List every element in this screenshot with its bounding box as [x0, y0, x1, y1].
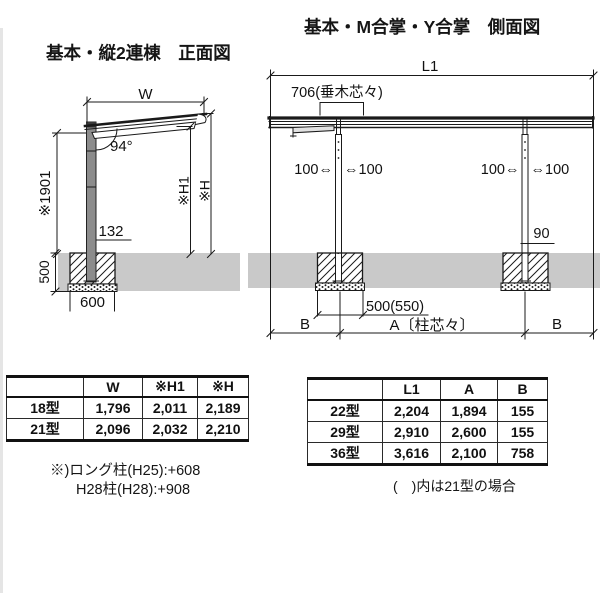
- table-row: 29型 2,910 2,600 155: [308, 421, 548, 442]
- cell-w: 2,096: [84, 418, 143, 440]
- dim-600-label: 600: [80, 294, 105, 311]
- row-label: 36型: [308, 442, 383, 464]
- dim-706-label: 706(垂木芯々): [291, 84, 383, 101]
- dim-h1: ※H1: [176, 123, 195, 258]
- cell-a: 1,894: [441, 400, 498, 422]
- cell-l1: 2,204: [383, 400, 441, 422]
- header-h: ※H: [198, 377, 249, 397]
- cell-b: 758: [498, 442, 548, 464]
- dim-h1-label: ※H1: [176, 176, 192, 206]
- technical-diagrams: 94° W ※1901 132: [0, 0, 600, 600]
- cell-b: 155: [498, 400, 548, 422]
- side-view-diagram: L1 706(垂木芯々): [248, 58, 600, 339]
- cell-h1: 2,032: [143, 418, 198, 440]
- front-note-line1: ※)ロング柱(H25):+608: [50, 459, 200, 480]
- table-header-row: L1 A B: [308, 379, 548, 400]
- dim-100-right-a: 100⇔: [481, 162, 520, 178]
- dim-100-left-a: 100⇔: [294, 162, 333, 178]
- dim-132-label: 132: [99, 223, 124, 240]
- dim-1901-label: ※1901: [37, 171, 54, 217]
- header-l1: L1: [383, 379, 441, 400]
- table-row: 36型 3,616 2,100 758: [308, 442, 548, 464]
- dim-span: B A〔柱芯々〕 B: [267, 316, 597, 339]
- dim-500-550-label: 500(550): [366, 299, 424, 315]
- cell-w: 1,796: [84, 397, 143, 419]
- support-post-front: [87, 122, 97, 282]
- row-label: 18型: [7, 397, 84, 419]
- row-label: 29型: [308, 421, 383, 442]
- dim-706: 706(垂木芯々): [291, 84, 383, 115]
- dim-h-label: ※H: [197, 180, 213, 202]
- header-blank: [7, 377, 84, 397]
- table-header-row: W ※H1 ※H: [7, 377, 249, 397]
- dim-90-label: 90: [533, 226, 549, 242]
- cell-h: 2,189: [198, 397, 249, 419]
- dim-a-label: A〔柱芯々〕: [389, 317, 474, 334]
- dim-500-550: 500(550): [314, 292, 428, 319]
- dim-post-height: ※1901: [37, 130, 86, 258]
- cell-a: 2,600: [441, 421, 498, 442]
- dim-b-right-label: B: [552, 316, 562, 333]
- dim-90: 90: [521, 226, 554, 244]
- table-row: 22型 2,204 1,894 155: [308, 400, 548, 422]
- dim-l1: L1: [267, 58, 597, 79]
- dim-angle-label: 94°: [110, 138, 133, 155]
- dim-100-left-b: ⇔100: [344, 162, 383, 178]
- dim-100-right-b: ⇔100: [531, 162, 570, 178]
- row-label: 22型: [308, 400, 383, 422]
- front-view-diagram: 94° W ※1901 132: [36, 86, 240, 311]
- dim-l1-label: L1: [422, 58, 439, 75]
- cell-h: 2,210: [198, 418, 249, 440]
- header-h1: ※H1: [143, 377, 198, 397]
- table-row: 21型 2,096 2,032 2,210: [7, 418, 249, 440]
- header-w: W: [84, 377, 143, 397]
- header-blank: [308, 379, 383, 400]
- row-label: 21型: [7, 418, 84, 440]
- drawing-sheet: 基本・縦2連棟 正面図 基本・M合掌・Y合掌 側面図: [0, 0, 600, 600]
- dim-w: W: [84, 86, 208, 123]
- header-b: B: [498, 379, 548, 400]
- side-size-table: L1 A B 22型 2,204 1,894 155 29型 2,910 2,6…: [307, 377, 548, 466]
- table-row: 18型 1,796 2,011 2,189: [7, 397, 249, 419]
- cell-b: 155: [498, 421, 548, 442]
- side-note: ( )内は21型の場合: [393, 476, 516, 496]
- dim-w-label: W: [138, 86, 153, 103]
- dim-600: 600: [70, 293, 115, 312]
- front-note-line2: H28柱(H28):+908: [76, 478, 190, 499]
- eave-bracket: [291, 126, 335, 137]
- dim-132: 132: [97, 223, 132, 240]
- header-a: A: [441, 379, 498, 400]
- dim-b-left-label: B: [300, 316, 310, 333]
- dim-500-label: 500: [36, 260, 52, 284]
- cell-h1: 2,011: [143, 397, 198, 419]
- cell-l1: 2,910: [383, 421, 441, 442]
- cell-l1: 3,616: [383, 442, 441, 464]
- front-size-table: W ※H1 ※H 18型 1,796 2,011 2,189 21型 2,096…: [6, 375, 249, 442]
- dim-h: ※H: [197, 110, 215, 258]
- cell-a: 2,100: [441, 442, 498, 464]
